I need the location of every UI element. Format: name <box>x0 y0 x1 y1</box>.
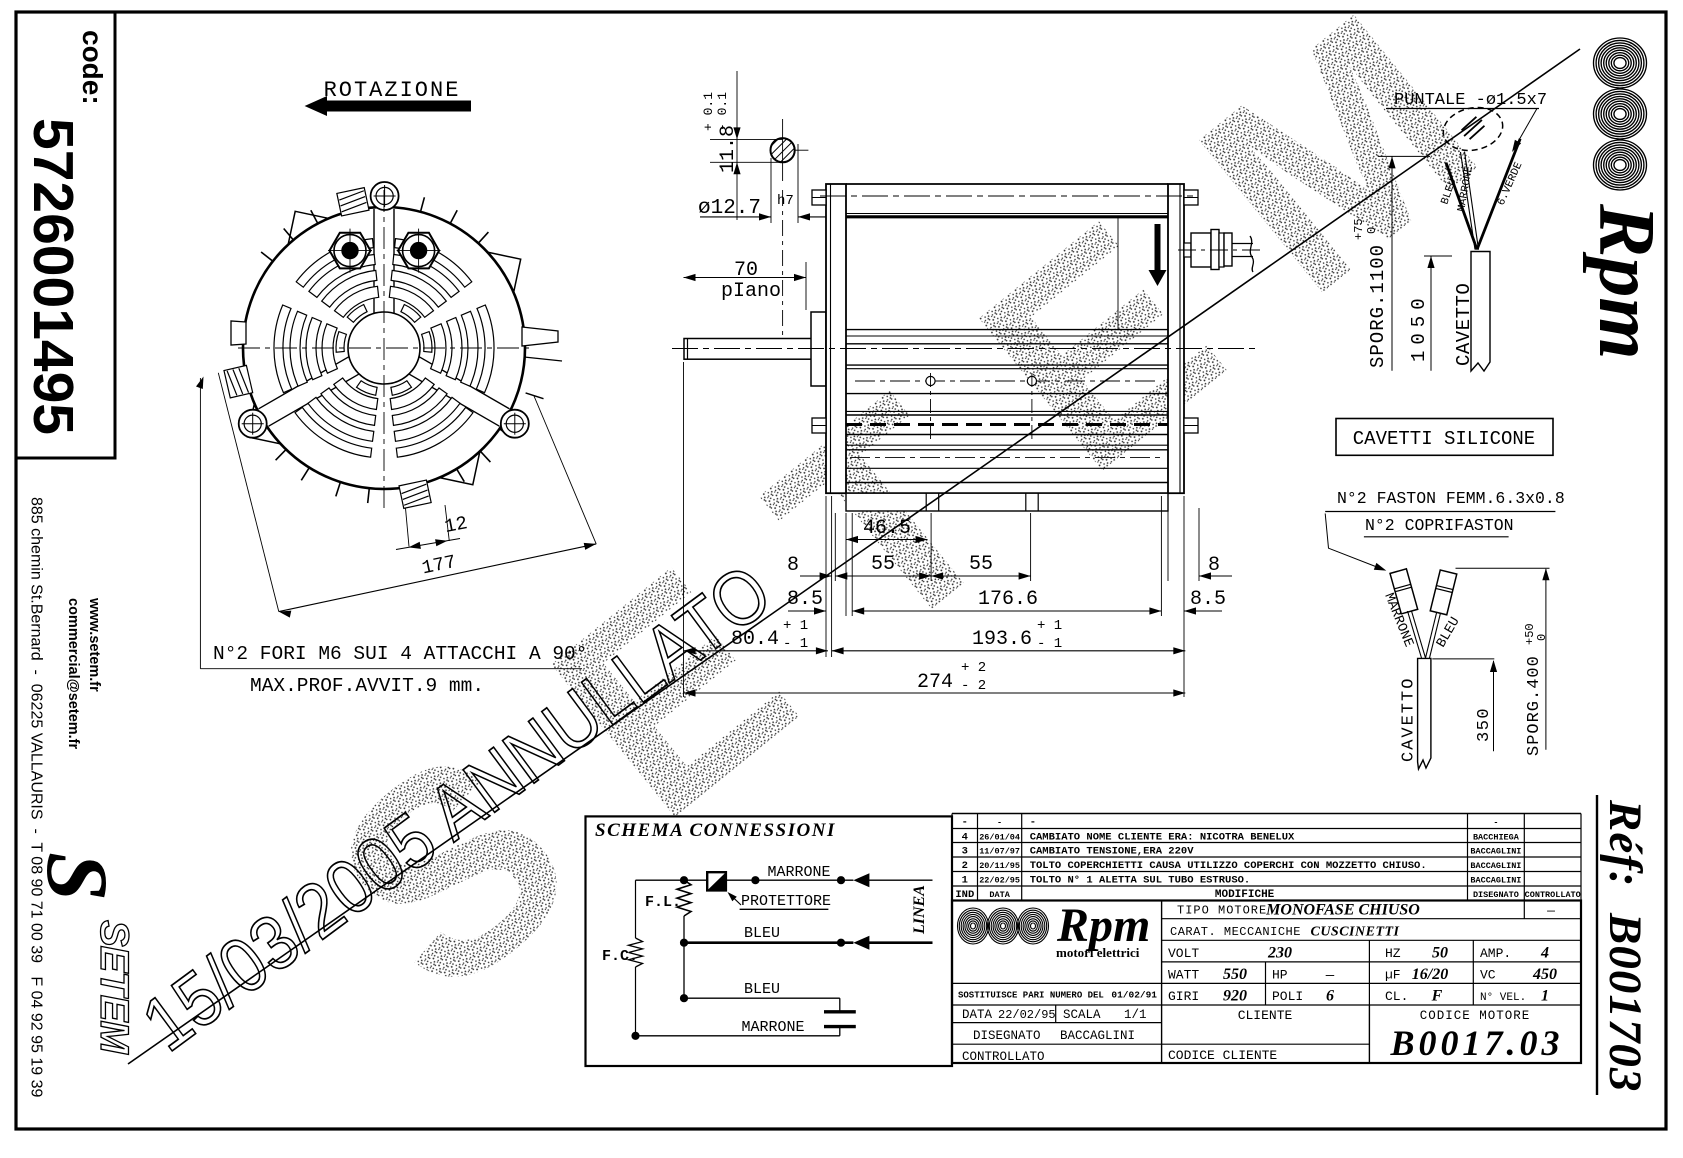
svg-text:11/07/97: 11/07/97 <box>979 847 1020 857</box>
svg-text:+75: +75 <box>1352 218 1366 240</box>
svg-text:AMP.: AMP. <box>1480 946 1511 961</box>
svg-text:www.setem.fr: www.setem.fr <box>86 597 102 692</box>
svg-text:WATT: WATT <box>1168 968 1199 983</box>
svg-text:- 2: - 2 <box>961 678 986 694</box>
svg-text:920: 920 <box>1223 988 1247 1005</box>
svg-text:S: S <box>28 852 125 901</box>
svg-text:BACCHIEGA: BACCHIEGA <box>1473 833 1520 843</box>
svg-text:VOLT: VOLT <box>1168 946 1199 961</box>
svg-text:PROTETTORE: PROTETTORE <box>741 893 831 910</box>
svg-text:HZ: HZ <box>1385 946 1401 961</box>
svg-text:1: 1 <box>962 875 968 887</box>
svg-text:885 chemin St.Bernard - 0622: 885 chemin St.Bernard - 06225 VALLAURIS … <box>28 497 45 1097</box>
svg-text:MARRONE: MARRONE <box>767 864 830 881</box>
svg-text:6: 6 <box>1326 988 1334 1005</box>
svg-text:176.6: 176.6 <box>978 588 1038 611</box>
svg-text:GIRI: GIRI <box>1168 989 1199 1004</box>
svg-text:BACCAGLINI: BACCAGLINI <box>1470 861 1521 871</box>
svg-text:3: 3 <box>962 846 968 858</box>
svg-text:- 1: - 1 <box>1037 636 1062 652</box>
svg-text:F.L.: F.L. <box>645 894 681 911</box>
svg-text:LINEA: LINEA <box>911 885 928 935</box>
svg-text:commercial@setem.fr: commercial@setem.fr <box>65 598 81 750</box>
svg-text:DATA: DATA <box>962 1008 993 1022</box>
svg-text:CAVETTO: CAVETTO <box>1400 677 1419 762</box>
svg-text:SCALA: SCALA <box>1063 1008 1101 1022</box>
svg-text:50: 50 <box>1432 945 1448 962</box>
svg-text:N°2 FORI M6 SUI 4 ATTACCHI A 9: N°2 FORI M6 SUI 4 ATTACCHI A 90° <box>213 643 587 665</box>
svg-text:BACCAGLINI: BACCAGLINI <box>1470 876 1521 886</box>
svg-text:B0017.03: B0017.03 <box>1389 1023 1563 1063</box>
svg-text:N°2 FASTON FEMM.6.3x0.8: N°2 FASTON FEMM.6.3x0.8 <box>1337 489 1565 508</box>
svg-text:F.C.: F.C. <box>602 948 638 965</box>
svg-text:0: 0 <box>1535 634 1549 641</box>
svg-text:code:: code: <box>77 30 108 105</box>
svg-text:22/02/95: 22/02/95 <box>998 1008 1056 1022</box>
svg-text:CAMBIATO NOME CLIENTE ERA: NIC: CAMBIATO NOME CLIENTE ERA: NICOTRA BENEL… <box>1030 832 1295 844</box>
svg-text:70: 70 <box>734 259 758 282</box>
svg-text:BLEU: BLEU <box>744 981 780 998</box>
svg-text:-: - <box>997 818 1002 828</box>
svg-text:450: 450 <box>1532 966 1557 983</box>
svg-text:55: 55 <box>871 553 895 576</box>
svg-text:CLIENTE: CLIENTE <box>1238 1008 1293 1023</box>
svg-text:+ 1: + 1 <box>1037 618 1062 634</box>
svg-text:SOSTITUISCE PARI NUMERO DEL: SOSTITUISCE PARI NUMERO DEL <box>958 991 1104 1001</box>
svg-text:230: 230 <box>1267 945 1292 962</box>
svg-text:- 1: - 1 <box>783 636 808 652</box>
svg-text:5726001495: 5726001495 <box>21 118 85 435</box>
svg-text:26/01/04: 26/01/04 <box>979 833 1020 843</box>
svg-text:VC: VC <box>1480 968 1496 983</box>
svg-text:8: 8 <box>1208 554 1220 577</box>
svg-text:80.4: 80.4 <box>731 628 779 651</box>
svg-text:CL.: CL. <box>1385 989 1408 1004</box>
svg-text:MAX.PROF.AVVIT.9 mm.: MAX.PROF.AVVIT.9 mm. <box>250 675 484 697</box>
svg-text:HP: HP <box>1272 968 1288 983</box>
svg-text:SPORG.1100: SPORG.1100 <box>1367 244 1389 368</box>
svg-text:- 0.1: - 0.1 <box>715 92 730 131</box>
svg-text:F: F <box>1431 988 1443 1005</box>
svg-text:—: — <box>1546 904 1555 919</box>
svg-text:-: - <box>1030 817 1036 829</box>
svg-text:pIano: pIano <box>721 280 781 303</box>
svg-text:MONOFASE CHIUSO: MONOFASE CHIUSO <box>1265 902 1420 919</box>
svg-text:SETEM: SETEM <box>92 920 136 1055</box>
svg-text:46.5: 46.5 <box>863 517 911 540</box>
svg-text:8.5: 8.5 <box>1190 588 1226 611</box>
svg-text:TIPO MOTORE: TIPO MOTORE <box>1177 904 1267 918</box>
svg-text:PUNTALE -ø1.5x7: PUNTALE -ø1.5x7 <box>1394 91 1547 110</box>
svg-text:-: - <box>1493 818 1498 828</box>
svg-text:4: 4 <box>962 832 968 844</box>
svg-text:DISEGNATO: DISEGNATO <box>1473 890 1519 900</box>
svg-text:4: 4 <box>1540 945 1549 962</box>
svg-text:-: - <box>962 817 968 829</box>
svg-text:Réf: B001703: Réf: B001703 <box>1599 799 1651 1092</box>
svg-text:CONTROLLATO: CONTROLLATO <box>962 1050 1045 1064</box>
svg-text:11.8: 11.8 <box>717 125 740 173</box>
svg-text:12: 12 <box>443 512 470 538</box>
svg-text:22/02/95: 22/02/95 <box>979 876 1020 886</box>
svg-text:h7: h7 <box>777 193 794 209</box>
svg-text:CAMBIATO TENSIONE,ERA 220V: CAMBIATO TENSIONE,ERA 220V <box>1030 846 1195 858</box>
svg-text:1/1: 1/1 <box>1124 1008 1147 1022</box>
svg-text:2: 2 <box>962 860 968 872</box>
svg-text:SPORG.400: SPORG.400 <box>1525 655 1544 756</box>
svg-text:CAVETTI SILICONE: CAVETTI SILICONE <box>1353 428 1535 450</box>
svg-text:16/20: 16/20 <box>1412 966 1448 983</box>
svg-text:CODICE CLIENTE: CODICE CLIENTE <box>1168 1048 1277 1063</box>
svg-text:CARAT. MECCANICHE: CARAT. MECCANICHE <box>1170 925 1301 939</box>
svg-text:1050: 1050 <box>1408 292 1430 362</box>
svg-text:Rpm: Rpm <box>1582 203 1670 360</box>
svg-text:CONTROLLATO: CONTROLLATO <box>1525 890 1581 900</box>
svg-text:20/11/95: 20/11/95 <box>979 861 1020 871</box>
svg-text:DISEGNATO: DISEGNATO <box>973 1029 1041 1043</box>
svg-text:+ 0.1: + 0.1 <box>701 92 716 131</box>
svg-text:1: 1 <box>1541 988 1549 1005</box>
svg-text:BACCAGLINI: BACCAGLINI <box>1470 847 1521 857</box>
svg-text:CUSCINETTI: CUSCINETTI <box>1310 925 1399 940</box>
svg-text:ROTAZIONE: ROTAZIONE <box>324 78 461 103</box>
svg-text:+ 2: + 2 <box>961 660 986 676</box>
svg-text:—: — <box>1325 968 1335 984</box>
svg-text:MARRONE: MARRONE <box>741 1019 804 1036</box>
svg-text:TOLTO N° 1 ALETTA SUL TUBO EST: TOLTO N° 1 ALETTA SUL TUBO ESTRUSO. <box>1030 875 1251 887</box>
svg-text:POLI: POLI <box>1272 989 1303 1004</box>
svg-text:CAVETTO: CAVETTO <box>1453 283 1475 366</box>
svg-text:350: 350 <box>1475 707 1494 742</box>
svg-text:193.6: 193.6 <box>972 628 1032 651</box>
svg-text:µF: µF <box>1385 968 1401 983</box>
svg-text:motori elettrici: motori elettrici <box>1056 945 1140 960</box>
svg-text:55: 55 <box>969 553 993 576</box>
svg-text:550: 550 <box>1223 966 1247 983</box>
svg-text:0: 0 <box>1365 227 1379 234</box>
svg-text:TOLTO COPERCHIETTI CAUSA UTILI: TOLTO COPERCHIETTI CAUSA UTILIZZO COPERC… <box>1030 860 1427 872</box>
svg-text:BACCAGLINI: BACCAGLINI <box>1060 1029 1135 1043</box>
svg-text:SCHEMA CONNESSIONI: SCHEMA CONNESSIONI <box>595 820 836 841</box>
svg-text:274: 274 <box>917 671 953 694</box>
svg-text:BLEU: BLEU <box>744 925 780 942</box>
svg-text:8: 8 <box>787 554 799 577</box>
svg-text:+ 1: + 1 <box>783 618 808 634</box>
svg-text:DATA: DATA <box>989 890 1010 900</box>
svg-text:N° VEL.: N° VEL. <box>1480 992 1526 1004</box>
svg-text:01/02/91: 01/02/91 <box>1111 990 1157 1001</box>
svg-text:CODICE MOTORE: CODICE MOTORE <box>1420 1009 1531 1023</box>
svg-text:N°2 COPRIFASTON: N°2 COPRIFASTON <box>1365 516 1514 535</box>
